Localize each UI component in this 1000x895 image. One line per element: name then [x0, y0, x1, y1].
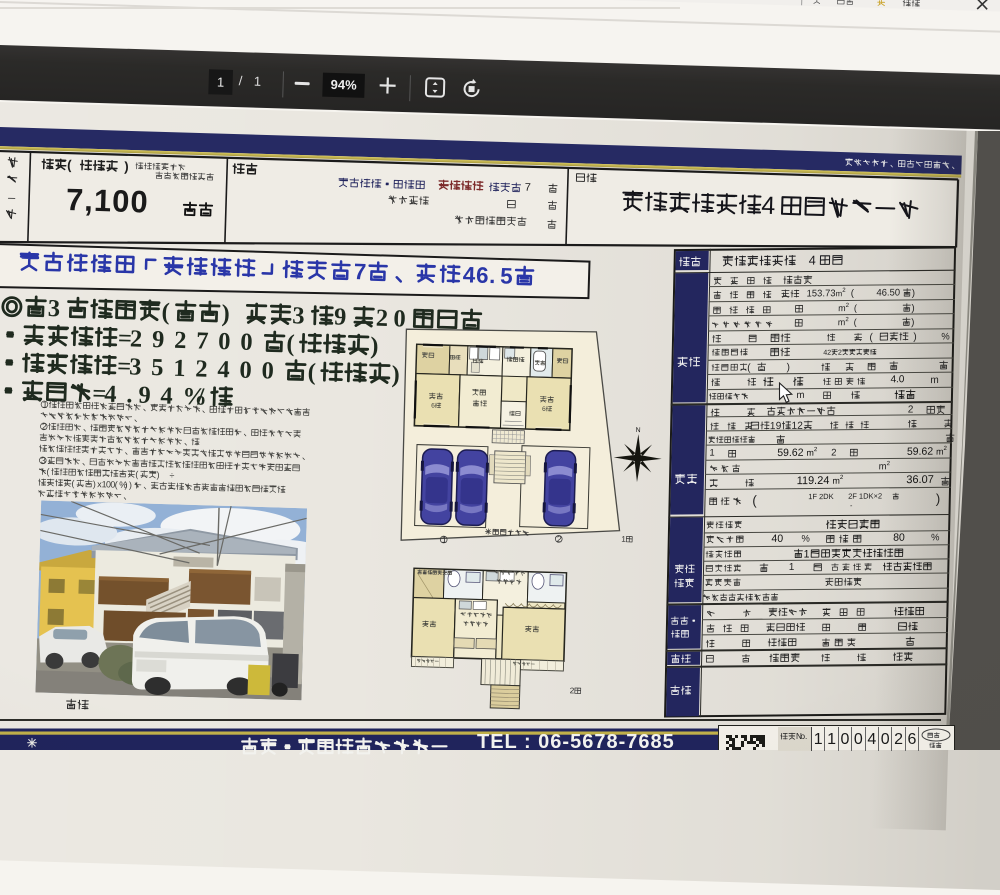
svg-text:): ) [912, 288, 915, 299]
svg-text:m: m [796, 390, 804, 401]
svg-text:2: 2 [797, 420, 803, 431]
svg-text:m: m [930, 375, 939, 386]
svg-text:1: 1 [803, 548, 809, 560]
svg-text:2: 2 [827, 348, 831, 356]
svg-text:2: 2 [838, 348, 842, 356]
svg-text:(: ( [752, 493, 757, 508]
svg-text:(: ( [869, 332, 873, 343]
svg-text:): ) [786, 362, 790, 373]
svg-text:4: 4 [809, 252, 816, 267]
svg-text:9: 9 [776, 420, 782, 431]
svg-text:(: ( [747, 362, 751, 373]
svg-text:): ) [911, 303, 914, 314]
svg-text:): ) [913, 331, 917, 342]
svg-text:): ) [911, 317, 914, 328]
svg-text:.: . [805, 732, 807, 741]
